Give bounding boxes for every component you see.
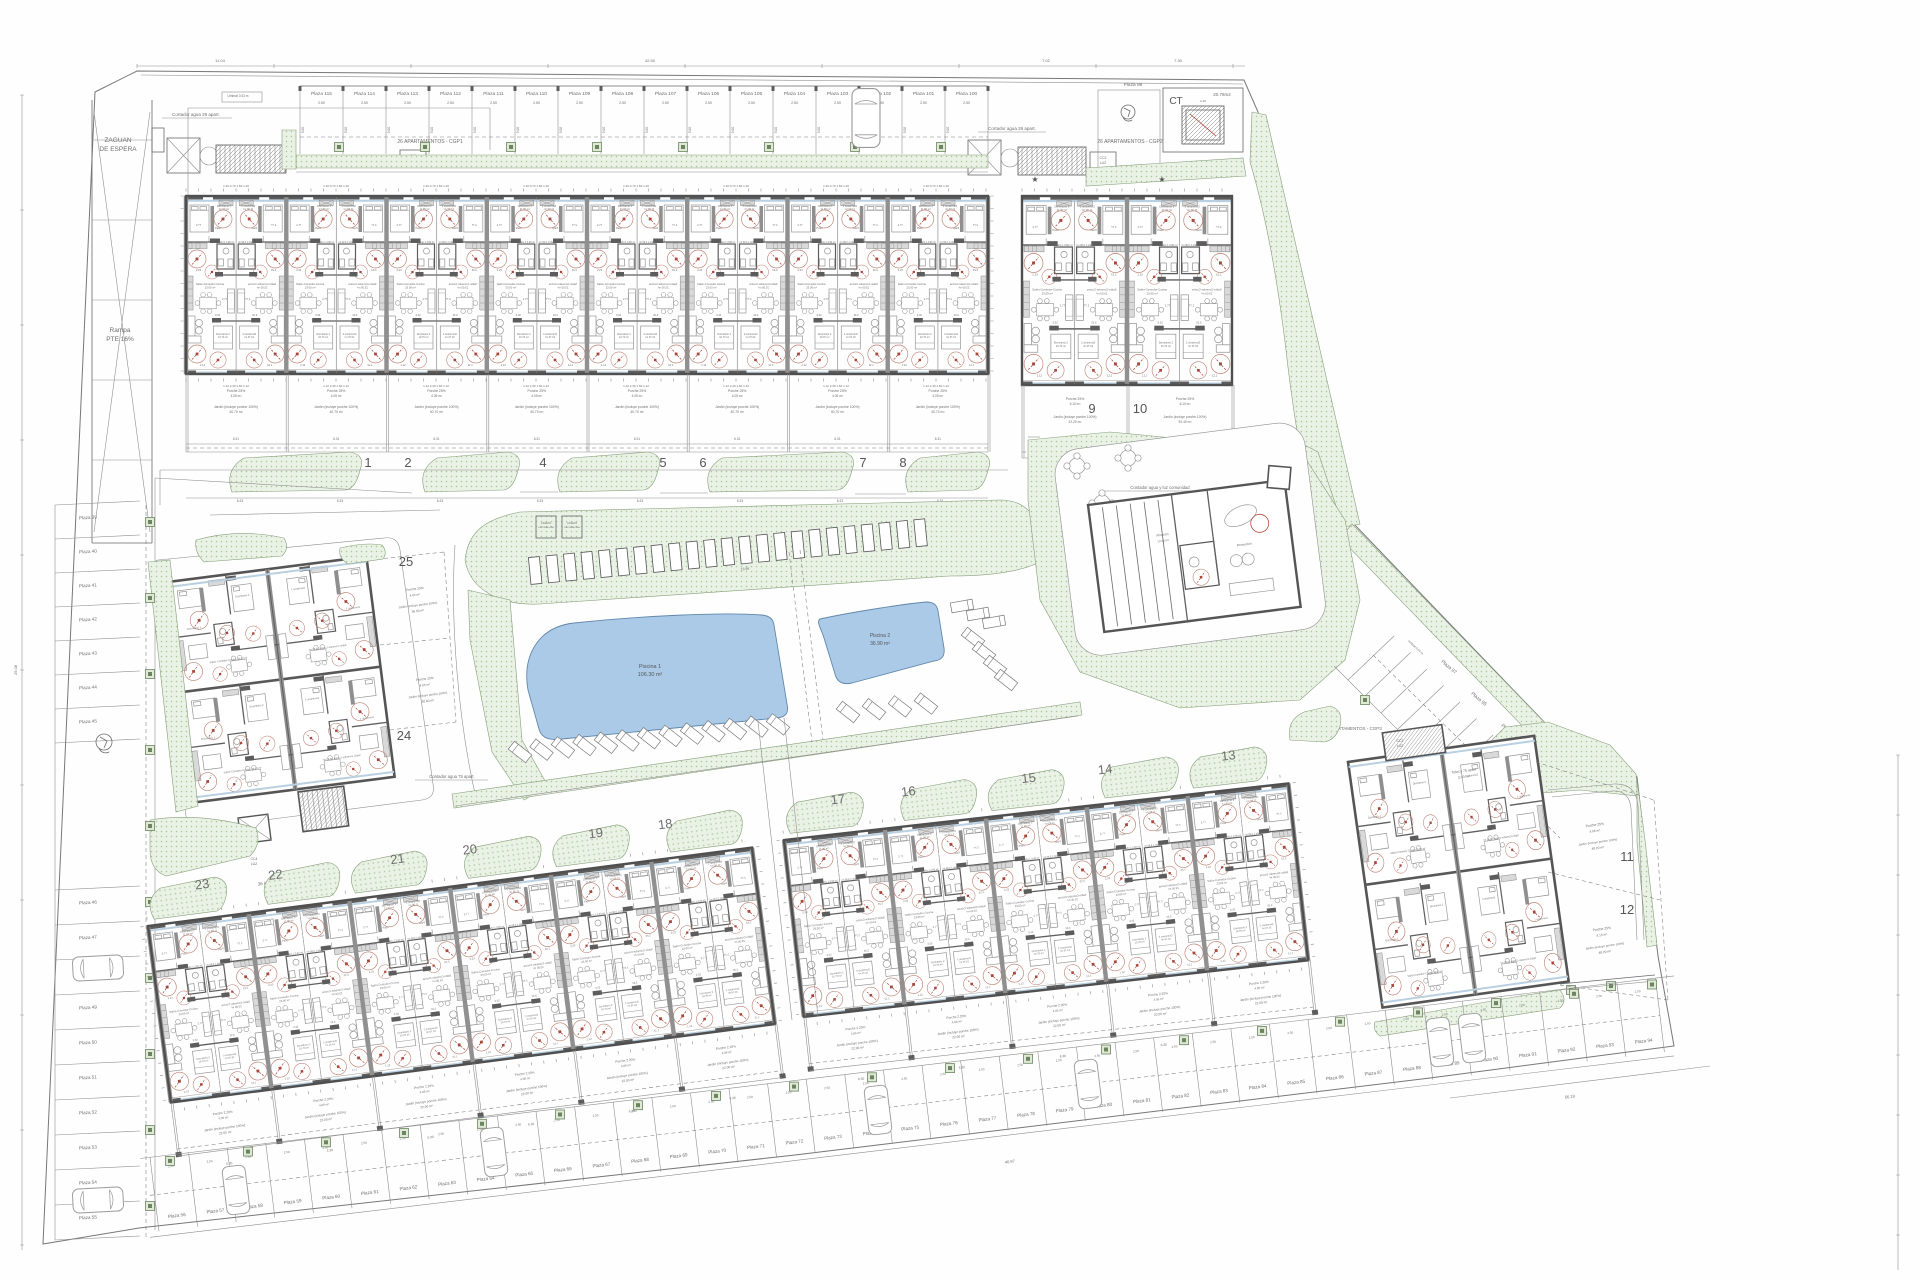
- svg-text:★: ★: [1031, 175, 1038, 184]
- svg-text:Jardín (incluye porche 100%): Jardín (incluye porche 100%): [715, 405, 759, 409]
- svg-text:21: 21: [389, 850, 405, 867]
- svg-text:42.50: 42.50: [645, 58, 656, 63]
- svg-text:5.00: 5.00: [387, 127, 391, 133]
- svg-text:2.10: 2.10: [1200, 99, 1206, 103]
- svg-text:6.33: 6.33: [437, 499, 443, 503]
- svg-text:2.50: 2.50: [1403, 1017, 1410, 1022]
- svg-text:7: 7: [859, 455, 866, 470]
- svg-text:4.05 m²: 4.05 m²: [331, 394, 342, 398]
- svg-text:Plaza 49: Plaza 49: [79, 1005, 98, 1011]
- svg-text:7.30: 7.30: [1174, 58, 1183, 63]
- svg-text:106.30 m²: 106.30 m²: [638, 672, 663, 678]
- svg-text:6.30: 6.30: [427, 1135, 434, 1140]
- svg-text:6.31: 6.31: [935, 437, 941, 441]
- svg-text:Jardín (incluye porche 100%): Jardín (incluye porche 100%): [1164, 415, 1207, 419]
- svg-text:Jardín (incluye porche 100%): Jardín (incluye porche 100%): [815, 405, 859, 409]
- svg-text:4.05 m²: 4.05 m²: [231, 394, 242, 398]
- svg-text:2.50: 2.50: [1210, 1040, 1217, 1045]
- svg-text:24: 24: [397, 728, 411, 743]
- svg-text:Plaza 108: Plaza 108: [612, 91, 634, 97]
- svg-text:6.31: 6.31: [433, 437, 439, 441]
- svg-text:Plaza 109: Plaza 109: [569, 91, 591, 97]
- svg-text:6.33: 6.33: [737, 499, 743, 503]
- svg-text:6.30: 6.30: [528, 1122, 535, 1127]
- svg-text:2.50: 2.50: [1557, 998, 1564, 1003]
- svg-text:40.70 m²: 40.70 m²: [530, 410, 544, 414]
- svg-text:5.00: 5.00: [731, 127, 735, 133]
- svg-text:2.50: 2.50: [662, 101, 669, 105]
- svg-text:22: 22: [267, 866, 283, 883]
- svg-text:2.50: 2.50: [747, 1095, 754, 1100]
- svg-text:LUZ: LUZ: [1397, 744, 1404, 748]
- svg-text:2.50: 2.50: [490, 101, 497, 105]
- svg-text:40.70 m²: 40.70 m²: [931, 410, 945, 414]
- svg-text:23: 23: [194, 876, 210, 893]
- svg-text:2.50: 2.50: [1326, 1026, 1333, 1031]
- svg-text:6.33: 6.33: [837, 499, 843, 503]
- svg-text:14: 14: [1097, 761, 1113, 778]
- svg-text:PTE 16%: PTE 16%: [106, 336, 134, 343]
- svg-text:Plaza 98: Plaza 98: [1124, 82, 1143, 88]
- svg-text:20: 20: [462, 841, 478, 858]
- svg-text:1.40 0.73 1.60 1.40: 1.40 0.73 1.60 1.40: [523, 184, 549, 188]
- svg-text:Jardín (incluye porche 100%): Jardín (incluye porche 100%): [414, 405, 458, 409]
- svg-text:Jardín (incluye porche 100%): Jardín (incluye porche 100%): [214, 405, 258, 409]
- svg-text:2.50: 2.50: [576, 101, 583, 105]
- svg-text:5.00: 5.00: [774, 127, 778, 133]
- svg-text:5.00: 5.00: [301, 127, 305, 133]
- svg-text:40.70 m²: 40.70 m²: [430, 410, 444, 414]
- svg-text:1.40 0.73 1.60 1.40: 1.40 0.73 1.60 1.40: [623, 184, 649, 188]
- svg-text:26 APARTAMENTOS - CGP1: 26 APARTAMENTOS - CGP1: [397, 139, 462, 145]
- svg-text:6.10 m²: 6.10 m²: [1070, 402, 1081, 406]
- svg-text:4: 4: [539, 455, 546, 470]
- svg-text:Plaza 110: Plaza 110: [526, 91, 547, 97]
- svg-text:2.50: 2.50: [592, 1113, 599, 1118]
- svg-text:20.78m2: 20.78m2: [1213, 92, 1231, 97]
- svg-text:17: 17: [830, 791, 846, 808]
- svg-text:2.50: 2.50: [447, 101, 454, 105]
- svg-text:40.70 m²: 40.70 m²: [731, 410, 745, 414]
- svg-text:2.50: 2.50: [1249, 1035, 1256, 1040]
- svg-text:9: 9: [1088, 401, 1095, 416]
- svg-text:1.40 0.73 1.60 1.40: 1.40 0.73 1.60 1.40: [323, 184, 349, 188]
- svg-text:2.50: 2.50: [515, 1122, 522, 1127]
- svg-text:2.50: 2.50: [670, 1104, 677, 1109]
- svg-text:2.50: 2.50: [533, 101, 540, 105]
- svg-text:2.50: 2.50: [619, 101, 626, 105]
- svg-text:Plaza 41: Plaza 41: [79, 583, 98, 589]
- svg-text:Porche 25%: Porche 25%: [628, 389, 646, 393]
- svg-text:Porche 25%: Porche 25%: [1176, 397, 1194, 401]
- svg-text:2.50: 2.50: [1287, 1030, 1294, 1035]
- svg-text:2.50: 2.50: [824, 1086, 831, 1091]
- svg-text:4.05 m²: 4.05 m²: [531, 394, 542, 398]
- svg-text:Piscina 2: Piscina 2: [870, 633, 891, 639]
- svg-text:2.50: 2.50: [361, 1141, 368, 1146]
- svg-text:2: 2: [404, 455, 411, 470]
- svg-text:2.50: 2.50: [791, 101, 798, 105]
- svg-text:5.00: 5.00: [645, 127, 649, 133]
- svg-text:6.31: 6.31: [734, 437, 740, 441]
- svg-text:25.08: 25.08: [13, 664, 18, 675]
- svg-text:LUZ: LUZ: [251, 862, 258, 866]
- svg-text:Plaza 101: Plaza 101: [913, 91, 935, 97]
- svg-text:Plaza 53: Plaza 53: [79, 1145, 98, 1151]
- svg-text:Porche 25%: Porche 25%: [1066, 397, 1084, 401]
- svg-text:Porche 25%: Porche 25%: [929, 389, 947, 393]
- svg-text:★: ★: [1158, 175, 1165, 184]
- svg-text:2.50: 2.50: [705, 101, 712, 105]
- svg-text:Contador agua y luz comunidad: Contador agua y luz comunidad: [1130, 485, 1190, 490]
- svg-text:Plaza 54: Plaza 54: [79, 1180, 98, 1186]
- svg-text:5.00: 5.00: [473, 127, 477, 133]
- svg-text:6.31: 6.31: [634, 437, 640, 441]
- svg-text:4.05 m²: 4.05 m²: [932, 394, 943, 398]
- svg-text:Jardín (incluye porche 100%): Jardín (incluye porche 100%): [515, 405, 559, 409]
- svg-text:Umbral 0.03 m: Umbral 0.03 m: [228, 94, 249, 98]
- svg-text:DEPURADORA: DEPURADORA: [538, 526, 554, 529]
- svg-text:ZAGUAN: ZAGUAN: [104, 137, 131, 144]
- svg-text:13: 13: [1220, 747, 1236, 764]
- svg-text:Plaza 42: Plaza 42: [79, 617, 98, 623]
- svg-text:6.31: 6.31: [233, 437, 239, 441]
- svg-text:4.05 m²: 4.05 m²: [632, 394, 643, 398]
- svg-text:4.05 m²: 4.05 m²: [832, 394, 843, 398]
- svg-text:5: 5: [659, 455, 666, 470]
- svg-text:Plaza 105: Plaza 105: [741, 91, 763, 97]
- svg-text:Piscina 1: Piscina 1: [639, 664, 661, 670]
- svg-text:1.12 2.30 1.60 1.12: 1.12 2.30 1.60 1.12: [323, 384, 349, 388]
- svg-text:1.40 0.73 1.60 1.40: 1.40 0.73 1.60 1.40: [223, 184, 249, 188]
- svg-text:11.04: 11.04: [215, 58, 225, 63]
- svg-text:Plaza 112: Plaza 112: [440, 91, 461, 97]
- svg-text:2.50: 2.50: [284, 1150, 291, 1155]
- svg-text:6: 6: [699, 455, 706, 470]
- svg-text:5.00: 5.00: [688, 127, 692, 133]
- svg-text:18: 18: [657, 816, 673, 833]
- svg-text:36.90 m²: 36.90 m²: [870, 641, 890, 647]
- svg-text:Plaza 44: Plaza 44: [79, 685, 98, 691]
- svg-text:Plaza 115: Plaza 115: [311, 91, 332, 97]
- svg-text:CT: CT: [1169, 96, 1182, 107]
- svg-text:Plaza 55: Plaza 55: [79, 1215, 98, 1221]
- svg-text:1: 1: [364, 455, 371, 470]
- svg-text:8: 8: [899, 455, 906, 470]
- svg-text:2.50: 2.50: [901, 1076, 908, 1081]
- svg-text:7.02: 7.02: [1042, 58, 1051, 63]
- svg-text:Plaza 40: Plaza 40: [79, 549, 98, 555]
- svg-text:2.50: 2.50: [978, 1067, 985, 1072]
- svg-text:DE ESPERA: DE ESPERA: [99, 146, 137, 153]
- svg-text:Cortador agua 26 apart.: Cortador agua 26 apart.: [988, 126, 1036, 131]
- svg-text:2.50: 2.50: [206, 1159, 213, 1164]
- svg-text:11: 11: [1620, 849, 1634, 864]
- svg-text:2.50: 2.50: [1171, 1044, 1178, 1049]
- svg-text:2.50: 2.50: [361, 101, 368, 105]
- svg-text:2.50: 2.50: [1480, 1007, 1487, 1012]
- svg-text:6.33: 6.33: [537, 499, 543, 503]
- svg-text:5.00: 5.00: [344, 127, 348, 133]
- svg-text:5.00: 5.00: [946, 127, 950, 133]
- svg-text:Porche 25%: Porche 25%: [427, 389, 445, 393]
- svg-text:Porche 25%: Porche 25%: [728, 389, 746, 393]
- svg-text:26 APARTAMENTOS - CGP2: 26 APARTAMENTOS - CGP2: [1097, 139, 1162, 145]
- svg-text:15: 15: [1021, 770, 1037, 787]
- svg-text:2.50: 2.50: [1017, 1063, 1024, 1068]
- svg-text:Plaza 107: Plaza 107: [655, 91, 677, 97]
- svg-text:2.50: 2.50: [1635, 989, 1642, 994]
- svg-text:1.40 0.73 1.60 1.40: 1.40 0.73 1.60 1.40: [723, 184, 749, 188]
- svg-text:CASETA: CASETA: [567, 521, 577, 525]
- svg-text:Porche 25%: Porche 25%: [528, 389, 546, 393]
- svg-text:40.70 m²: 40.70 m²: [630, 410, 644, 414]
- svg-text:2.50: 2.50: [438, 1132, 445, 1137]
- svg-text:2.50: 2.50: [963, 101, 970, 105]
- svg-text:2.50: 2.50: [1519, 1003, 1526, 1008]
- svg-text:5.00: 5.00: [817, 127, 821, 133]
- svg-text:Porche 25%: Porche 25%: [828, 389, 846, 393]
- svg-text:40.70 m²: 40.70 m²: [831, 410, 845, 414]
- svg-text:Plaza 114: Plaza 114: [354, 91, 375, 97]
- svg-text:22.20 m²: 22.20 m²: [1068, 420, 1082, 424]
- svg-text:Plaza 39: Plaza 39: [79, 515, 98, 521]
- svg-text:Porche 25%: Porche 25%: [227, 389, 245, 393]
- svg-text:Plaza 45: Plaza 45: [79, 719, 98, 725]
- svg-text:2.50: 2.50: [404, 101, 411, 105]
- svg-text:Jardín (incluye porche 100%): Jardín (incluye porche 100%): [615, 405, 659, 409]
- svg-text:Plaza 103: Plaza 103: [827, 91, 849, 97]
- svg-text:5.00: 5.00: [602, 127, 606, 133]
- svg-text:Plaza 111: Plaza 111: [483, 91, 504, 97]
- svg-text:6.33: 6.33: [337, 499, 343, 503]
- svg-text:2.50: 2.50: [1364, 1021, 1371, 1026]
- svg-text:23.96: 23.96: [740, 567, 749, 572]
- svg-text:Jardín (incluye porche 100%): Jardín (incluye porche 100%): [314, 405, 358, 409]
- svg-text:2.50: 2.50: [920, 101, 927, 105]
- svg-text:2.50: 2.50: [1133, 1049, 1140, 1054]
- svg-text:1.12 2.30 1.60 1.12: 1.12 2.30 1.60 1.12: [623, 384, 649, 388]
- svg-text:6.31: 6.31: [834, 437, 840, 441]
- svg-text:Plaza 51: Plaza 51: [79, 1075, 98, 1081]
- svg-text:LUZ: LUZ: [1100, 161, 1107, 165]
- svg-text:Plaza 52: Plaza 52: [79, 1110, 98, 1116]
- svg-text:4.05 m²: 4.05 m²: [732, 394, 743, 398]
- svg-text:5.00: 5.00: [903, 127, 907, 133]
- svg-text:DEPURADORA: DEPURADORA: [564, 526, 580, 529]
- svg-text:2.50: 2.50: [1056, 1058, 1063, 1063]
- svg-text:Plaza 47: Plaza 47: [79, 935, 98, 941]
- svg-text:16: 16: [900, 783, 916, 800]
- svg-text:1.40 0.73 1.60 1.40: 1.40 0.73 1.60 1.40: [823, 184, 849, 188]
- svg-text:4.05 m²: 4.05 m²: [431, 394, 442, 398]
- svg-text:10: 10: [1133, 401, 1147, 416]
- svg-text:1.12 2.30 1.60 1.12: 1.12 2.30 1.60 1.12: [423, 384, 449, 388]
- svg-text:CC3: CC3: [1396, 739, 1403, 743]
- svg-text:Plaza 43: Plaza 43: [79, 651, 98, 657]
- svg-text:Plaza 46: Plaza 46: [79, 900, 98, 906]
- svg-text:92.40 m²: 92.40 m²: [1178, 420, 1192, 424]
- svg-text:1.12 2.30 1.60 1.12: 1.12 2.30 1.60 1.12: [723, 384, 749, 388]
- svg-text:Jardín (incluye porche 100%): Jardín (incluye porche 100%): [916, 405, 960, 409]
- svg-text:6.30: 6.30: [1160, 1043, 1167, 1048]
- svg-text:Contador agua 75 apart.: Contador agua 75 apart.: [429, 774, 474, 779]
- svg-text:Plaza 50: Plaza 50: [79, 1040, 98, 1046]
- svg-text:Plaza 106: Plaza 106: [698, 91, 720, 97]
- svg-text:6.33: 6.33: [637, 499, 643, 503]
- svg-text:6.10 m²: 6.10 m²: [1180, 402, 1191, 406]
- svg-text:1.12 2.30 1.60 1.12: 1.12 2.30 1.60 1.12: [223, 384, 249, 388]
- svg-text:CC4: CC4: [250, 857, 257, 861]
- svg-text:2.50: 2.50: [1094, 1053, 1101, 1058]
- svg-text:2.50: 2.50: [834, 101, 841, 105]
- svg-text:5.00: 5.00: [559, 127, 563, 133]
- svg-text:5.00: 5.00: [430, 127, 434, 133]
- svg-text:6.31: 6.31: [534, 437, 540, 441]
- svg-text:Cortador agua 26 apart.: Cortador agua 26 apart.: [172, 112, 220, 117]
- svg-text:1.40 0.73 1.60 1.40: 1.40 0.73 1.60 1.40: [423, 184, 449, 188]
- svg-text:CASETA: CASETA: [541, 521, 551, 525]
- svg-text:6.33: 6.33: [237, 499, 243, 503]
- svg-text:Plaza 113: Plaza 113: [397, 91, 418, 97]
- svg-text:2.50: 2.50: [318, 101, 325, 105]
- svg-text:Rampa: Rampa: [110, 327, 131, 334]
- svg-text:19: 19: [588, 825, 604, 842]
- svg-text:2.50: 2.50: [1442, 1012, 1449, 1017]
- svg-text:6.30: 6.30: [959, 1065, 966, 1070]
- svg-text:CC2: CC2: [1099, 156, 1106, 160]
- svg-text:6.31: 6.31: [333, 437, 339, 441]
- svg-text:Plaza 104: Plaza 104: [784, 91, 806, 97]
- svg-text:2.50: 2.50: [748, 101, 755, 105]
- svg-text:40.70 m²: 40.70 m²: [330, 410, 344, 414]
- svg-text:Porche 25%: Porche 25%: [327, 389, 345, 393]
- svg-text:1.12 2.30 1.60 1.12: 1.12 2.30 1.60 1.12: [523, 384, 549, 388]
- svg-text:1.40 0.73 1.60 1.40: 1.40 0.73 1.60 1.40: [923, 184, 949, 188]
- svg-text:6.30: 6.30: [858, 1077, 865, 1082]
- svg-text:2.50: 2.50: [1596, 994, 1603, 999]
- svg-text:5.00: 5.00: [516, 127, 520, 133]
- svg-text:Plaza 100: Plaza 100: [956, 91, 978, 97]
- svg-text:1.12 2.30 1.60 1.12: 1.12 2.30 1.60 1.12: [823, 384, 849, 388]
- svg-text:12: 12: [1620, 902, 1634, 917]
- svg-text:40.70 m²: 40.70 m²: [229, 410, 243, 414]
- svg-text:1.12 2.30 1.60 1.12: 1.12 2.30 1.60 1.12: [923, 384, 949, 388]
